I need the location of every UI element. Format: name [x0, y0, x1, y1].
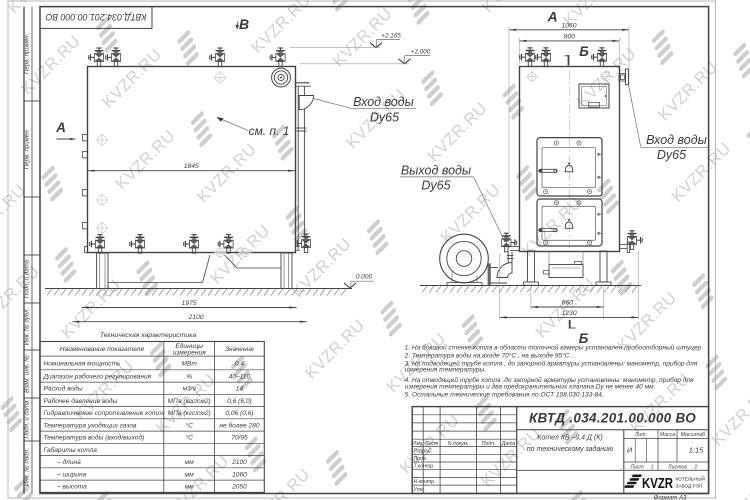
svg-text:900: 900 [564, 33, 576, 40]
svg-text:мм: мм [185, 471, 195, 478]
svg-text:2. Температура воды на входе: 2. Температура воды на входе 70°С , на в… [404, 351, 574, 359]
svg-text:– высота: – высота [56, 484, 87, 491]
svg-text:Вход воды: Вход воды [353, 95, 414, 109]
svg-text:1845: 1845 [184, 163, 199, 170]
svg-text:Выход воды: Выход воды [401, 164, 471, 178]
svg-text:Пров.: Пров. [414, 456, 428, 462]
svg-text:+2.165: +2.165 [381, 32, 401, 39]
svg-text:Инв. № дубл.: Инв. № дубл. [23, 308, 30, 345]
svg-text:Формат А3: Формат А3 [654, 496, 687, 500]
svg-text:+2.000: +2.000 [411, 48, 431, 55]
svg-text:Подп. и дата: Подп. и дата [23, 400, 30, 439]
svg-text:0,6 (6,0): 0,6 (6,0) [227, 398, 252, 405]
svg-text:Dy65: Dy65 [421, 179, 450, 193]
svg-text:Техническая характеристика: Техническая характеристика [100, 332, 196, 339]
svg-text:Котел КВ –0,4 Д (К): Котел КВ –0,4 Д (К) [537, 435, 602, 442]
svg-text:КВТД .034.201.00.000 ВО: КВТД .034.201.00.000 ВО [529, 410, 696, 425]
svg-text:Н.контр.: Н.контр. [414, 479, 436, 485]
svg-text:Перв. примен.: Перв. примен. [23, 129, 30, 170]
svg-text:2050: 2050 [231, 484, 247, 491]
svg-text:см. п. 1: см. п. 1 [249, 124, 290, 138]
svg-text:Лит.: Лит. [634, 432, 647, 438]
svg-text:1060: 1060 [232, 471, 247, 478]
svg-text:°С: °С [185, 421, 193, 429]
svg-text:2: 2 [694, 464, 698, 470]
svg-text:измерения температуры.: измерения температуры. [405, 367, 487, 374]
svg-text:Dy65: Dy65 [657, 148, 686, 162]
svg-text:1. На боковой стенке котла в: 1. На боковой стенке котла в области топ… [405, 343, 702, 351]
svg-text:мм: мм [185, 484, 195, 491]
svg-text:Значение: Значение [225, 346, 254, 353]
svg-text:Инв. № подл.: Инв. № подл. [23, 448, 30, 486]
svg-text:%: % [186, 373, 192, 380]
svg-text:– ширина: – ширина [56, 471, 87, 478]
svg-text:мм: мм [185, 459, 195, 466]
svg-text:И: И [627, 446, 633, 455]
svg-text:Масштаб: Масштаб [681, 432, 706, 438]
svg-text:Dy65: Dy65 [370, 111, 399, 125]
svg-text:5. Остальные технические треб: 5. Остальные технические требования по О… [405, 391, 604, 399]
svg-text:0.000: 0.000 [356, 274, 373, 281]
svg-text:КВТД.034.201.00.000 ВО: КВТД.034.201.00.000 ВО [46, 12, 147, 22]
svg-text:Лист: Лист [424, 441, 439, 447]
svg-text:Т.контр.: Т.контр. [414, 464, 435, 470]
svg-text:МПа (кгс/см2): МПа (кгс/см2) [168, 410, 211, 417]
svg-text:Рабочее давление воды: Рабочее давление воды [44, 397, 118, 405]
svg-text:2100: 2100 [187, 314, 203, 321]
svg-text:Габариты котла: Габариты котла [44, 446, 98, 454]
svg-text:1230: 1230 [561, 310, 576, 317]
svg-text:Диапазон рабочего регулировани: Диапазон рабочего регулирования [43, 372, 152, 380]
svg-text:Подп.: Подп. [482, 441, 496, 447]
svg-text:Взам. инв. №: Взам. инв. № [23, 355, 30, 393]
svg-text:Номинальная мощность: Номинальная мощность [44, 360, 122, 367]
svg-text:Б: Б [579, 44, 589, 59]
svg-text:1975: 1975 [181, 300, 196, 307]
svg-text:Листов: Листов [667, 464, 687, 470]
svg-text:Расход воды: Расход воды [44, 385, 83, 393]
svg-text:не более 280: не более 280 [219, 421, 260, 429]
svg-text:Перв. примен.: Перв. примен. [23, 34, 30, 75]
svg-text:1: 1 [651, 464, 654, 470]
svg-text:– длина: – длина [56, 458, 81, 466]
svg-text:660: 660 [562, 300, 574, 307]
svg-text:МВт: МВт [182, 360, 198, 367]
svg-text:Разраб.: Разраб. [414, 448, 433, 454]
svg-text:Подп. и дата: Подп. и дата [23, 259, 30, 298]
svg-text:KVZR: KVZR [642, 476, 673, 492]
svg-text:2100: 2100 [231, 459, 247, 466]
svg-text:Утв.: Утв. [414, 487, 426, 493]
svg-text:1:15: 1:15 [689, 446, 704, 455]
svg-text:В: В [239, 16, 249, 32]
svg-text:Единицы: Единицы [175, 342, 203, 350]
svg-text:Дата: Дата [501, 441, 516, 447]
svg-text:N докум.: N докум. [448, 441, 469, 447]
svg-text:измерения: измерения [173, 350, 206, 357]
svg-text:А: А [55, 120, 66, 135]
svg-text:°С: °С [185, 434, 193, 442]
svg-text:м3/ч: м3/ч [182, 386, 196, 393]
svg-text:0,4: 0,4 [235, 360, 244, 367]
svg-text:Гидравлическое сопротивление к: Гидравлическое сопротивление котла [44, 409, 165, 417]
svg-text:Вход воды: Вход воды [646, 133, 707, 147]
svg-text:ЗАВОД РЭП: ЗАВОД РЭП [676, 484, 703, 489]
svg-text:1060: 1060 [561, 22, 576, 29]
svg-text:Температура уходящих газов: Температура уходящих газов [44, 421, 137, 429]
svg-text:0,06 (0,6): 0,06 (0,6) [225, 410, 253, 417]
svg-text:Температура воды (вход/выход): Температура воды (вход/выход) [44, 434, 145, 442]
svg-text:Масса: Масса [660, 432, 675, 438]
svg-text:14: 14 [236, 386, 244, 393]
svg-text:МПа (кгс/см2): МПа (кгс/см2) [168, 398, 211, 405]
svg-text:измерения температуры и два пр: измерения температуры и два предохраните… [405, 383, 656, 391]
svg-text:Наименование показателя: Наименование показателя [60, 346, 145, 353]
svg-text:Изм.: Изм. [412, 441, 423, 447]
svg-text:Лист: Лист [629, 464, 644, 470]
svg-text:А: А [546, 9, 557, 25]
svg-text:по техническому заданию: по техническому заданию [527, 445, 614, 453]
svg-text:КОТЕЛЬНЫЙ: КОТЕЛЬНЫЙ [676, 475, 705, 482]
svg-text:70/95: 70/95 [231, 435, 248, 442]
svg-text:40–110: 40–110 [229, 373, 251, 380]
